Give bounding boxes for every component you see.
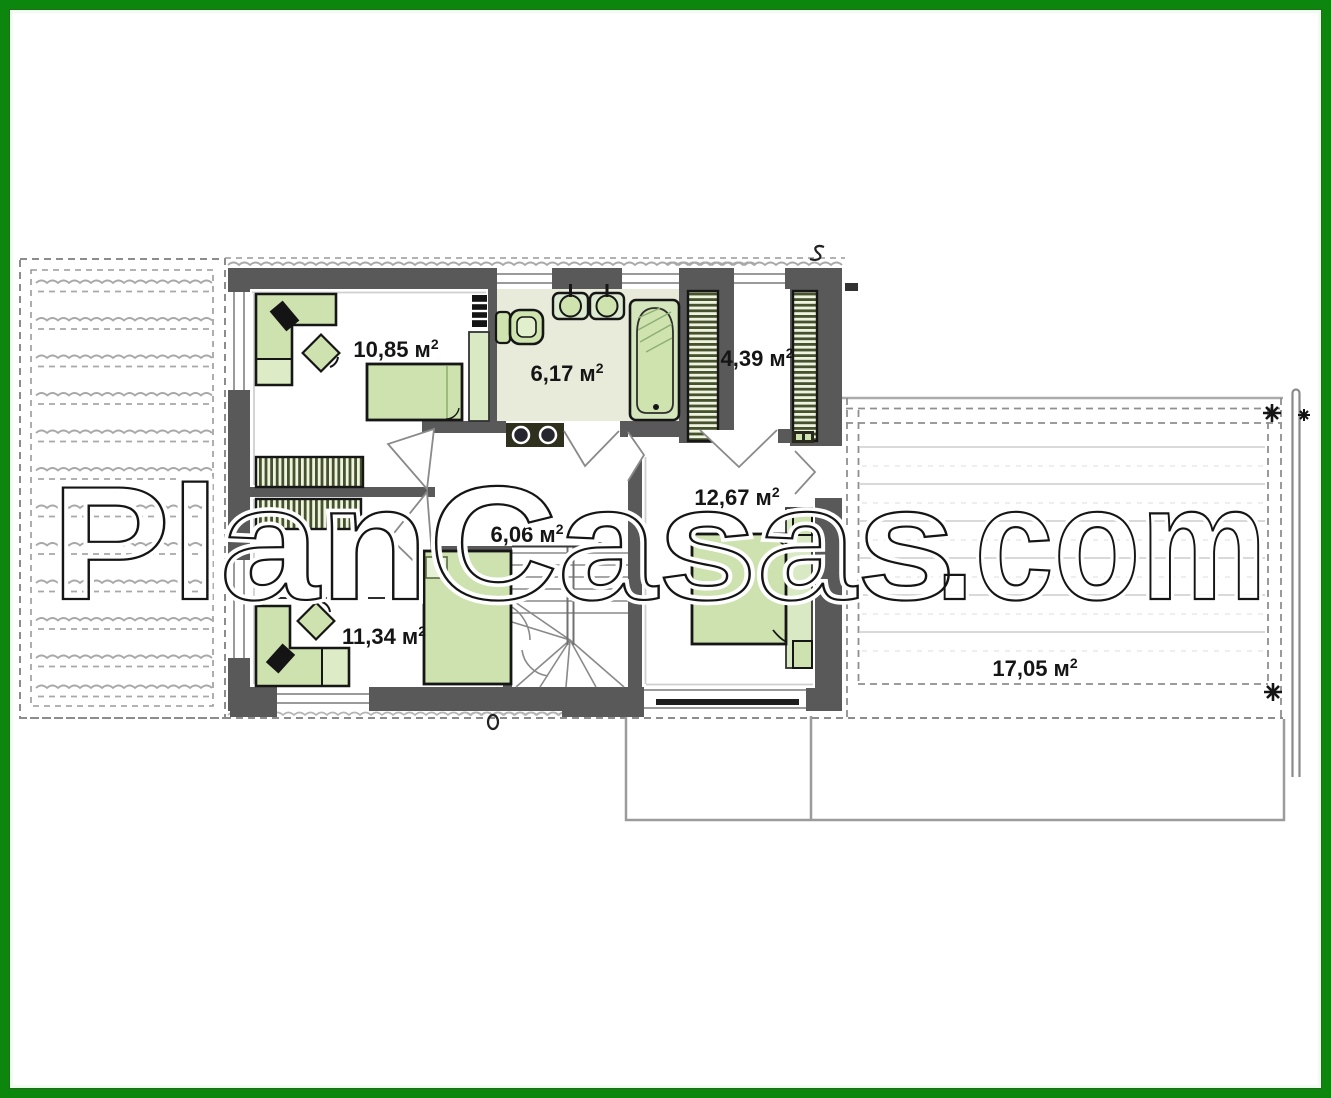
svg-text:4,39 м2: 4,39 м2 [720,345,793,371]
svg-text:.com: .com [935,453,1267,634]
svg-text:17,05 м2: 17,05 м2 [992,655,1077,681]
svg-text:10,85 м2: 10,85 м2 [353,336,438,362]
svg-text:PlanCasas: PlanCasas [51,453,956,634]
svg-text:6,17 м2: 6,17 м2 [530,360,603,386]
